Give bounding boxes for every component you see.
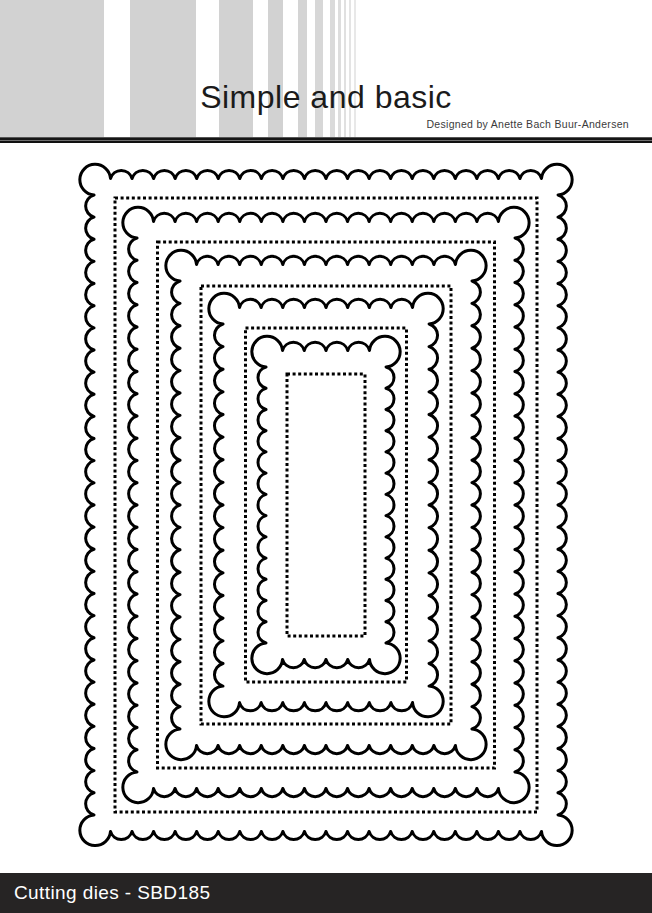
scalloped-die-outline-5 [252,336,400,673]
product-label: Cutting dies - SBD185 [0,873,652,913]
product-footer: Cutting dies - SBD185 [0,873,652,913]
product-image: Simple and basic Designed by Anette Bach… [0,0,652,913]
stitch-line-2 [158,242,495,768]
stitch-line-4 [246,328,407,682]
scalloped-die-outline-2 [123,207,529,802]
brand-title: Simple and basic [0,81,652,113]
scalloped-die-outline-1 [80,164,572,845]
designer-credit: Designed by Anette Bach Buur-Andersen [426,119,629,131]
header-divider [0,137,652,143]
stitch-line-5 [287,374,365,636]
scalloped-die-outline-4 [209,293,443,716]
page: { "header": { "brand": "Simple and basic… [0,0,652,913]
